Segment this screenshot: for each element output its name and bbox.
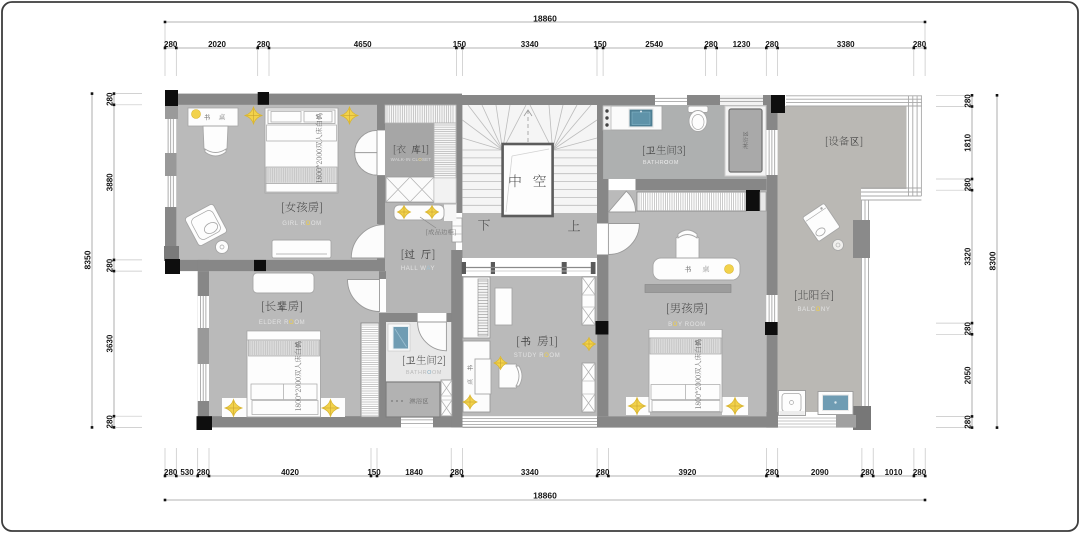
svg-text:150: 150 <box>453 40 467 49</box>
svg-text:280: 280 <box>164 40 178 49</box>
svg-text:280: 280 <box>964 415 973 429</box>
svg-text:3630: 3630 <box>106 334 115 352</box>
svg-text:150: 150 <box>367 468 381 477</box>
svg-text:HALL WAY: HALL WAY <box>401 266 435 272</box>
svg-text:4650: 4650 <box>354 40 372 49</box>
svg-text:1010: 1010 <box>885 468 903 477</box>
svg-text:18860: 18860 <box>533 14 557 24</box>
svg-text:ELDER ROOM: ELDER ROOM <box>259 320 305 326</box>
svg-text:280: 280 <box>964 94 973 108</box>
svg-text:4020: 4020 <box>281 468 299 477</box>
svg-text:BALCONY: BALCONY <box>798 307 831 313</box>
svg-text:280: 280 <box>704 40 718 49</box>
svg-text:2050: 2050 <box>964 366 973 384</box>
svg-text:2020: 2020 <box>208 40 226 49</box>
svg-text:280: 280 <box>106 92 115 106</box>
svg-text:2090: 2090 <box>811 468 829 477</box>
svg-text:3340: 3340 <box>521 40 539 49</box>
svg-text:280: 280 <box>913 468 927 477</box>
svg-text:GIRL ROOM: GIRL ROOM <box>282 221 322 227</box>
svg-text:280: 280 <box>106 258 115 272</box>
svg-text:3380: 3380 <box>837 40 855 49</box>
svg-text:1840: 1840 <box>405 468 423 477</box>
svg-text:1230: 1230 <box>733 40 751 49</box>
svg-text:530: 530 <box>180 468 194 477</box>
svg-text:3880: 3880 <box>106 173 115 191</box>
svg-text:8300: 8300 <box>988 251 998 270</box>
svg-text:280: 280 <box>964 321 973 335</box>
svg-text:280: 280 <box>964 177 973 191</box>
svg-text:280: 280 <box>257 40 271 49</box>
svg-text:3920: 3920 <box>679 468 697 477</box>
svg-text:18860: 18860 <box>533 491 557 501</box>
svg-text:280: 280 <box>106 415 115 429</box>
svg-text:8350: 8350 <box>83 250 93 269</box>
svg-text:BOY ROOM: BOY ROOM <box>668 322 706 328</box>
svg-text:BATHROOM: BATHROOM <box>643 160 679 166</box>
svg-text:STUDY ROOM: STUDY ROOM <box>514 353 561 359</box>
svg-text:280: 280 <box>450 468 464 477</box>
svg-text:BATHROOM: BATHROOM <box>406 370 442 376</box>
svg-text:2540: 2540 <box>645 40 663 49</box>
svg-text:150: 150 <box>593 40 607 49</box>
svg-text:3340: 3340 <box>521 468 539 477</box>
svg-text:WALK-IN CLOSET: WALK-IN CLOSET <box>391 157 432 162</box>
svg-text:280: 280 <box>596 468 610 477</box>
svg-text:3320: 3320 <box>964 247 973 265</box>
svg-text:1810: 1810 <box>964 133 973 151</box>
svg-text:280: 280 <box>765 40 779 49</box>
svg-text:280: 280 <box>861 468 875 477</box>
svg-text:280: 280 <box>197 468 211 477</box>
svg-text:280: 280 <box>913 40 927 49</box>
svg-text:280: 280 <box>765 468 779 477</box>
svg-text:280: 280 <box>164 468 178 477</box>
